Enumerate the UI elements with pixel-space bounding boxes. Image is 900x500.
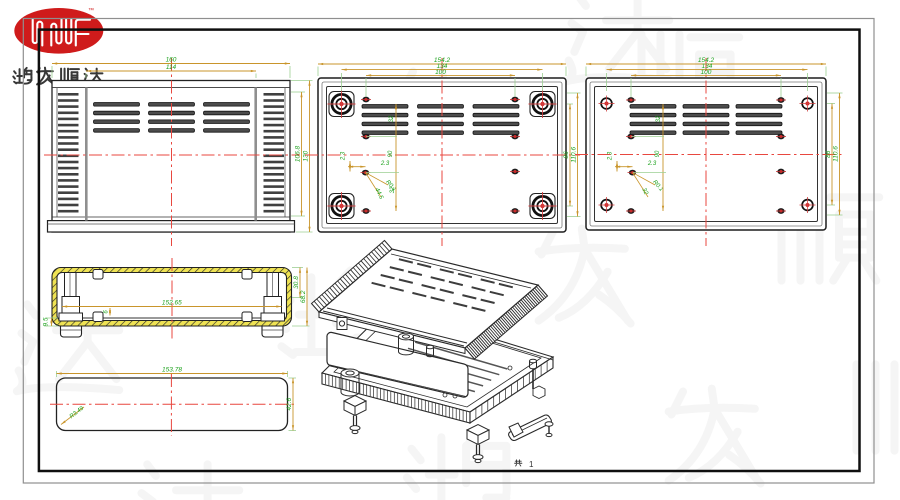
svg-text:68.2: 68.2 (300, 290, 307, 303)
svg-text:152.65: 152.65 (162, 300, 182, 307)
svg-text:114: 114 (166, 64, 177, 71)
svg-text:90: 90 (655, 150, 661, 157)
svg-text:86: 86 (825, 150, 832, 158)
svg-text:2.3: 2.3 (647, 161, 657, 167)
svg-text:1: 1 (529, 460, 534, 469)
svg-text:106.8: 106.8 (295, 145, 302, 162)
svg-text:32: 32 (390, 186, 396, 193)
svg-text:110.6: 110.6 (833, 146, 840, 162)
svg-text:86: 86 (563, 151, 570, 159)
svg-text:9.5: 9.5 (43, 317, 50, 326)
svg-text:160: 160 (166, 57, 177, 64)
svg-text:130: 130 (303, 150, 310, 161)
svg-text:100: 100 (435, 69, 446, 76)
svg-text:™: ™ (88, 7, 94, 14)
svg-text:2.3: 2.3 (341, 151, 347, 161)
svg-text:32: 32 (389, 115, 395, 122)
svg-text:32: 32 (656, 115, 662, 122)
svg-text:100: 100 (701, 69, 712, 76)
svg-text:2.3: 2.3 (380, 161, 390, 167)
svg-text:30.8: 30.8 (293, 276, 300, 289)
svg-text:153.78: 153.78 (162, 367, 182, 374)
svg-text:2.3: 2.3 (608, 151, 614, 161)
svg-text:42.6: 42.6 (286, 397, 293, 410)
svg-text:90: 90 (388, 150, 394, 157)
